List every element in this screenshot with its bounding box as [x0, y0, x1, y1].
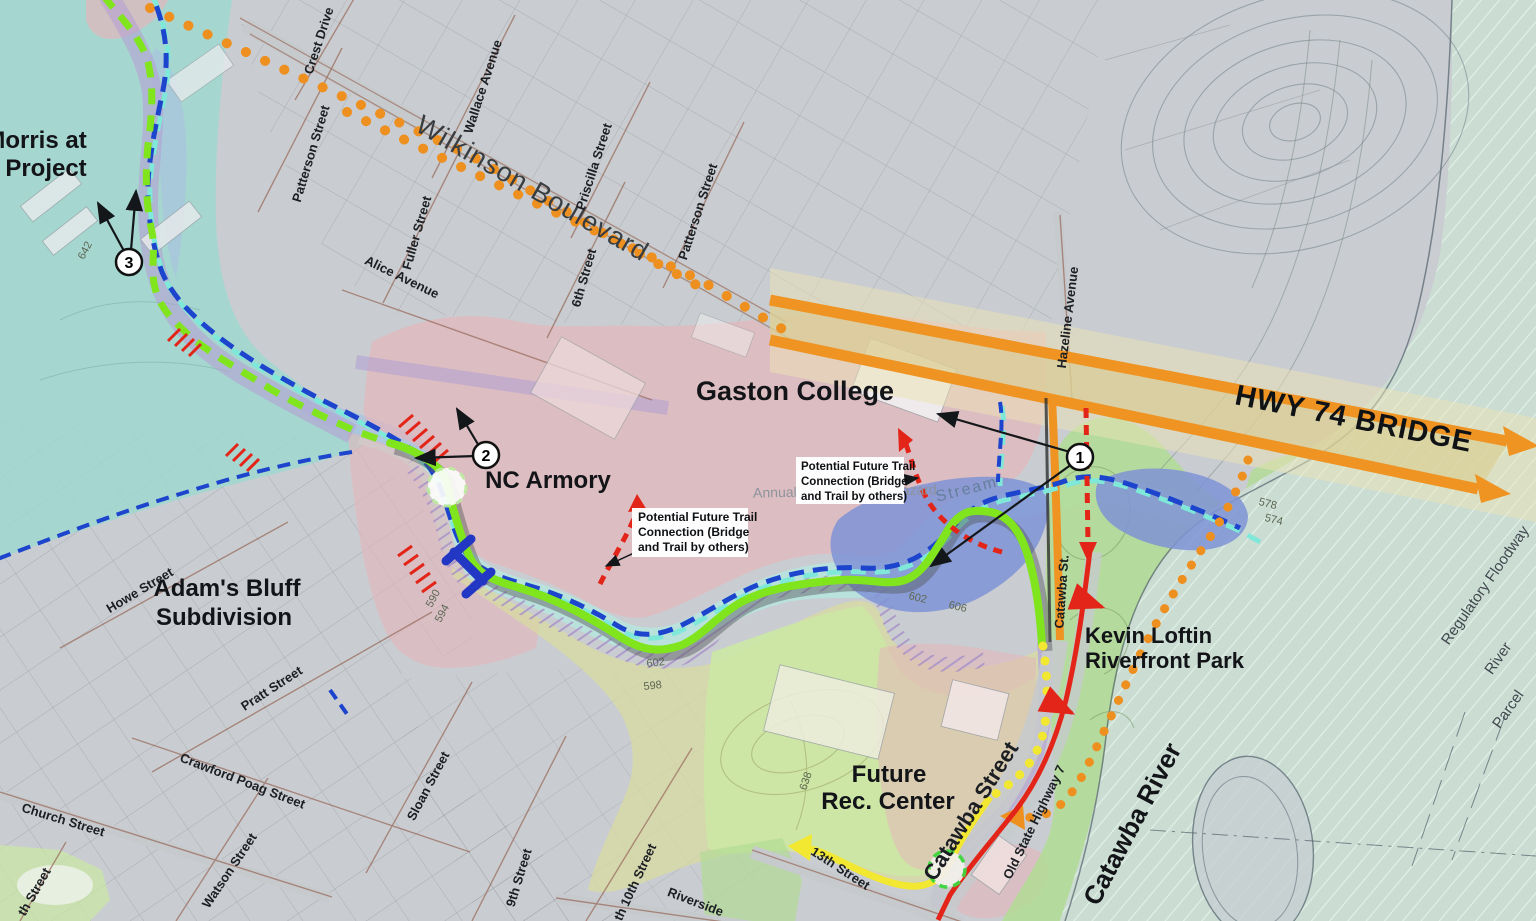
marker-1-number: 1	[1076, 450, 1085, 467]
map-canvas: 1 2 3 Annual Chance Flood Hazard Crest D…	[0, 0, 1536, 921]
trail-plan-map: 1 2 3 Annual Chance Flood Hazard Crest D…	[0, 0, 1536, 921]
note-east-line2: Connection (Bridge	[801, 476, 908, 488]
label-morris-line2: Project	[5, 155, 86, 182]
marker-3-number: 3	[125, 255, 134, 272]
label-kevin-loftin-line2: Riverfront Park	[1085, 648, 1245, 673]
note-west-line2: Connection (Bridge	[638, 525, 750, 539]
label-adams-bluff-line1: Adam's Bluff	[153, 575, 301, 602]
marker-1: 1	[1067, 444, 1093, 470]
note-west-line3: and Trail by others)	[638, 540, 749, 554]
note-east-line3: and Trail by others)	[801, 491, 907, 503]
label-nc-armory: NC Armory	[485, 467, 611, 494]
label-morris-line1: Morris at	[0, 127, 87, 154]
note-box-west: Potential Future Trail Connection (Bridg…	[632, 508, 757, 557]
note-east-line1: Potential Future Trail	[801, 461, 915, 473]
marker-2: 2	[473, 442, 499, 468]
marker-2-number: 2	[482, 448, 491, 465]
contour-602-a: 602	[646, 656, 666, 670]
label-future-rec-line1: Future	[852, 761, 927, 788]
label-future-rec-line2: Rec. Center	[821, 788, 954, 815]
contour-598: 598	[643, 679, 663, 693]
label-adams-bluff-line2: Subdivision	[156, 604, 292, 631]
label-gaston-college: Gaston College	[696, 376, 894, 406]
note-west-line1: Potential Future Trail	[638, 510, 757, 524]
label-kevin-loftin-line1: Kevin Loftin	[1085, 623, 1212, 648]
marker-3: 3	[116, 249, 142, 275]
note-box-east: Potential Future Trail Connection (Bridg…	[796, 457, 915, 504]
